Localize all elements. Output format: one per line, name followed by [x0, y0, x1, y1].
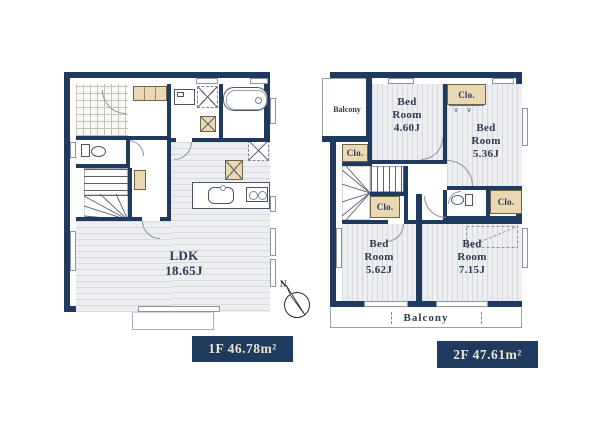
window — [436, 301, 488, 307]
balcony-bottom: Balcony — [330, 308, 522, 328]
wall — [404, 166, 408, 222]
room-name: LDK — [144, 248, 224, 263]
toilet-bowl-1f — [91, 146, 106, 157]
room-label-ldk: LDK 18.65J — [144, 248, 224, 279]
wall — [167, 84, 171, 221]
floor2-area-label: 2F 47.61m² — [437, 341, 538, 368]
wall — [76, 164, 130, 168]
window — [364, 301, 408, 307]
washroom-sink — [174, 89, 195, 105]
closet-label: Clo. — [347, 148, 364, 158]
washing-machine-pan — [197, 86, 218, 108]
toilet-tank-2f — [465, 194, 473, 206]
washroom-faucet — [177, 92, 184, 97]
bedroom-br-door-arc — [424, 196, 446, 218]
window — [196, 78, 218, 84]
balcony-top: Balcony — [322, 78, 372, 140]
terrace-outline — [132, 312, 214, 330]
balcony-divider — [481, 312, 483, 324]
wall — [486, 190, 490, 220]
window — [270, 259, 276, 287]
wall — [128, 168, 132, 221]
wall — [219, 84, 223, 138]
balcony-bottom-label: Balcony — [404, 312, 449, 324]
closet-label: Clo. — [377, 202, 394, 212]
pantry-space-x — [248, 140, 269, 161]
window — [70, 231, 76, 271]
wall — [126, 140, 130, 164]
window — [336, 228, 342, 268]
closet-left: Clo. — [342, 144, 368, 162]
bathtub — [223, 87, 268, 111]
wall — [322, 136, 372, 142]
room-size: 18.65J — [165, 263, 203, 278]
toilet-door-arc-1f — [128, 140, 144, 156]
floor1-area-label: 1F 46.78m² — [192, 336, 293, 362]
room-label-bedroom-tr: Bed Room 5.36J — [456, 122, 516, 161]
bathtub-drain — [255, 97, 262, 104]
window — [70, 142, 76, 158]
wall — [368, 142, 372, 164]
floor1-plan: LDK 18.65J — [64, 72, 270, 312]
window — [270, 196, 276, 212]
window — [250, 78, 268, 84]
closet-right: Clo. — [490, 190, 522, 214]
washroom-storage-x — [200, 116, 216, 132]
wall — [443, 84, 447, 160]
stairs-winder-2f — [342, 166, 370, 220]
room-name: Bed Room — [468, 122, 504, 148]
closet-mid: Clo. — [370, 196, 400, 218]
stair-side-storage — [134, 170, 146, 190]
compass-north-icon: N — [277, 277, 315, 323]
room-label-bedroom-br: Bed Room 7.15J — [442, 238, 502, 277]
wall — [422, 220, 522, 224]
window — [522, 108, 528, 146]
refrigerator-space-x — [225, 160, 243, 180]
wall — [447, 186, 522, 190]
kitchen-faucet — [220, 185, 226, 191]
room-name: Bed Room — [389, 96, 425, 122]
room-size: 7.15J — [459, 264, 485, 276]
wall — [370, 192, 404, 196]
wall — [372, 160, 447, 164]
window — [388, 78, 414, 84]
window — [522, 228, 528, 268]
kitchen-stove — [246, 187, 268, 202]
window — [270, 228, 276, 256]
stove-burner-right — [258, 191, 267, 200]
floorplan-canvas: LDK 18.65J N 1F 46.78m² Balcony Clo. ∨∨ … — [0, 0, 600, 422]
toilet-tank-1f — [81, 144, 90, 157]
room-label-bedroom-bl: Bed Room 5.62J — [349, 238, 409, 277]
wall — [416, 194, 422, 301]
balcony-divider — [391, 312, 393, 324]
wall — [366, 78, 372, 140]
room-size: 5.36J — [473, 148, 499, 160]
room-label-bedroom-tl: Bed Room 4.60J — [377, 96, 437, 135]
kitchen-sink — [208, 187, 234, 204]
wall — [76, 136, 167, 140]
toilet-door-arc-2f — [448, 191, 461, 204]
wall — [342, 220, 418, 224]
room-size: 4.60J — [394, 122, 420, 134]
balcony-top-label: Balcony — [333, 105, 361, 114]
room-size: 5.62J — [366, 264, 392, 276]
window — [270, 98, 276, 124]
closet-label: Clo. — [498, 197, 515, 207]
window — [492, 78, 514, 84]
floor2-plan: Balcony Clo. ∨∨ Clo. Clo. Clo. — [330, 72, 522, 307]
stove-burner-left — [249, 191, 258, 200]
closet-label: Clo. — [458, 90, 475, 100]
room-name: Bed Room — [361, 238, 397, 264]
closet-top-hangers: ∨∨ — [449, 105, 484, 115]
closet-top: Clo. — [447, 84, 486, 105]
ldk-room-fill-right — [171, 142, 270, 312]
wall — [342, 162, 372, 166]
shoe-cabinet — [133, 86, 167, 101]
room-name: Bed Room — [454, 238, 490, 264]
compass-north-label: N — [280, 279, 287, 289]
stairs-treads-2f — [370, 166, 404, 192]
stairs-treads-1f — [84, 168, 128, 196]
